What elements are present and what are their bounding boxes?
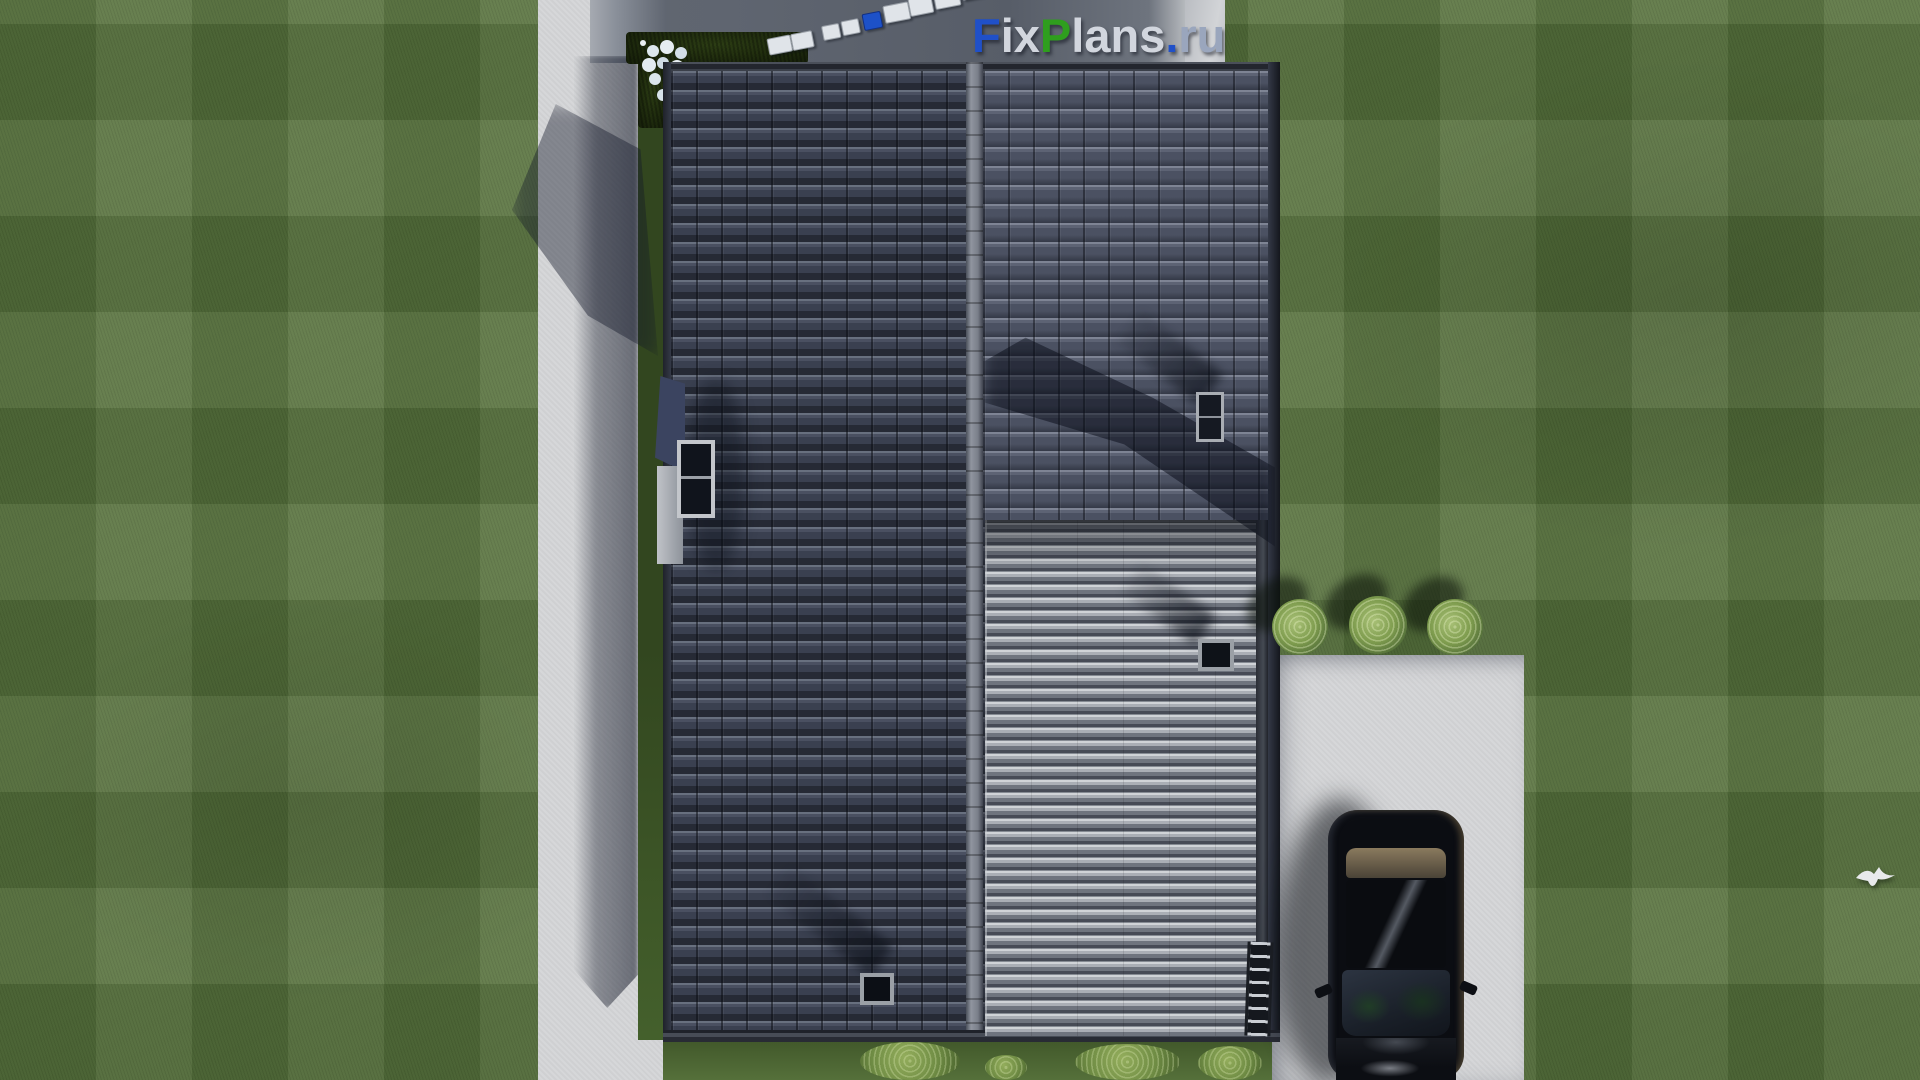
car-windshield [1342,970,1450,1036]
roof-ridge [966,62,983,1042]
car-bumper [1336,1054,1456,1080]
round-bush [1349,596,1407,654]
furniture-piece [960,0,985,1]
roof-ladder [1244,942,1273,1037]
furniture-piece [821,23,842,41]
furniture-piece [766,34,793,55]
round-bush [1272,599,1328,655]
logo-segment: P [1040,9,1071,62]
shrub [860,1042,960,1080]
shrub [1075,1044,1180,1080]
dormer-window [677,440,715,518]
shrub [1198,1046,1262,1080]
roof-vent-lower [860,973,894,1005]
fixplans-watermark: FixPlans.ru [972,12,1225,59]
car-roof [1346,880,1446,968]
furniture-piece [933,0,962,10]
roof-vent-upper [1198,639,1234,671]
logo-segment: . [1165,9,1178,62]
furniture-piece [840,18,861,36]
logo-segment: ix [1001,9,1040,62]
round-bush [1427,599,1483,655]
flying-bird-icon [1853,862,1899,902]
logo-segment: ru [1178,9,1225,62]
metal-roof-section [985,520,1263,1036]
furniture-piece [790,30,815,51]
furniture-piece [882,1,911,24]
bottom-grass [663,1042,1272,1080]
logo-segment: lans [1071,9,1165,62]
shrub [985,1055,1027,1080]
car-rear-window [1346,848,1446,878]
white-flowers [640,40,646,46]
logo-segment: F [972,9,1001,62]
site-render: FixPlans.ru [0,0,1920,1080]
car [1328,810,1464,1080]
roof-edge-right [1268,62,1280,1042]
skylight-window [1196,392,1224,442]
furniture-piece-blue [861,11,883,31]
furniture-piece [907,0,934,17]
hedge-bed-left [638,62,666,128]
